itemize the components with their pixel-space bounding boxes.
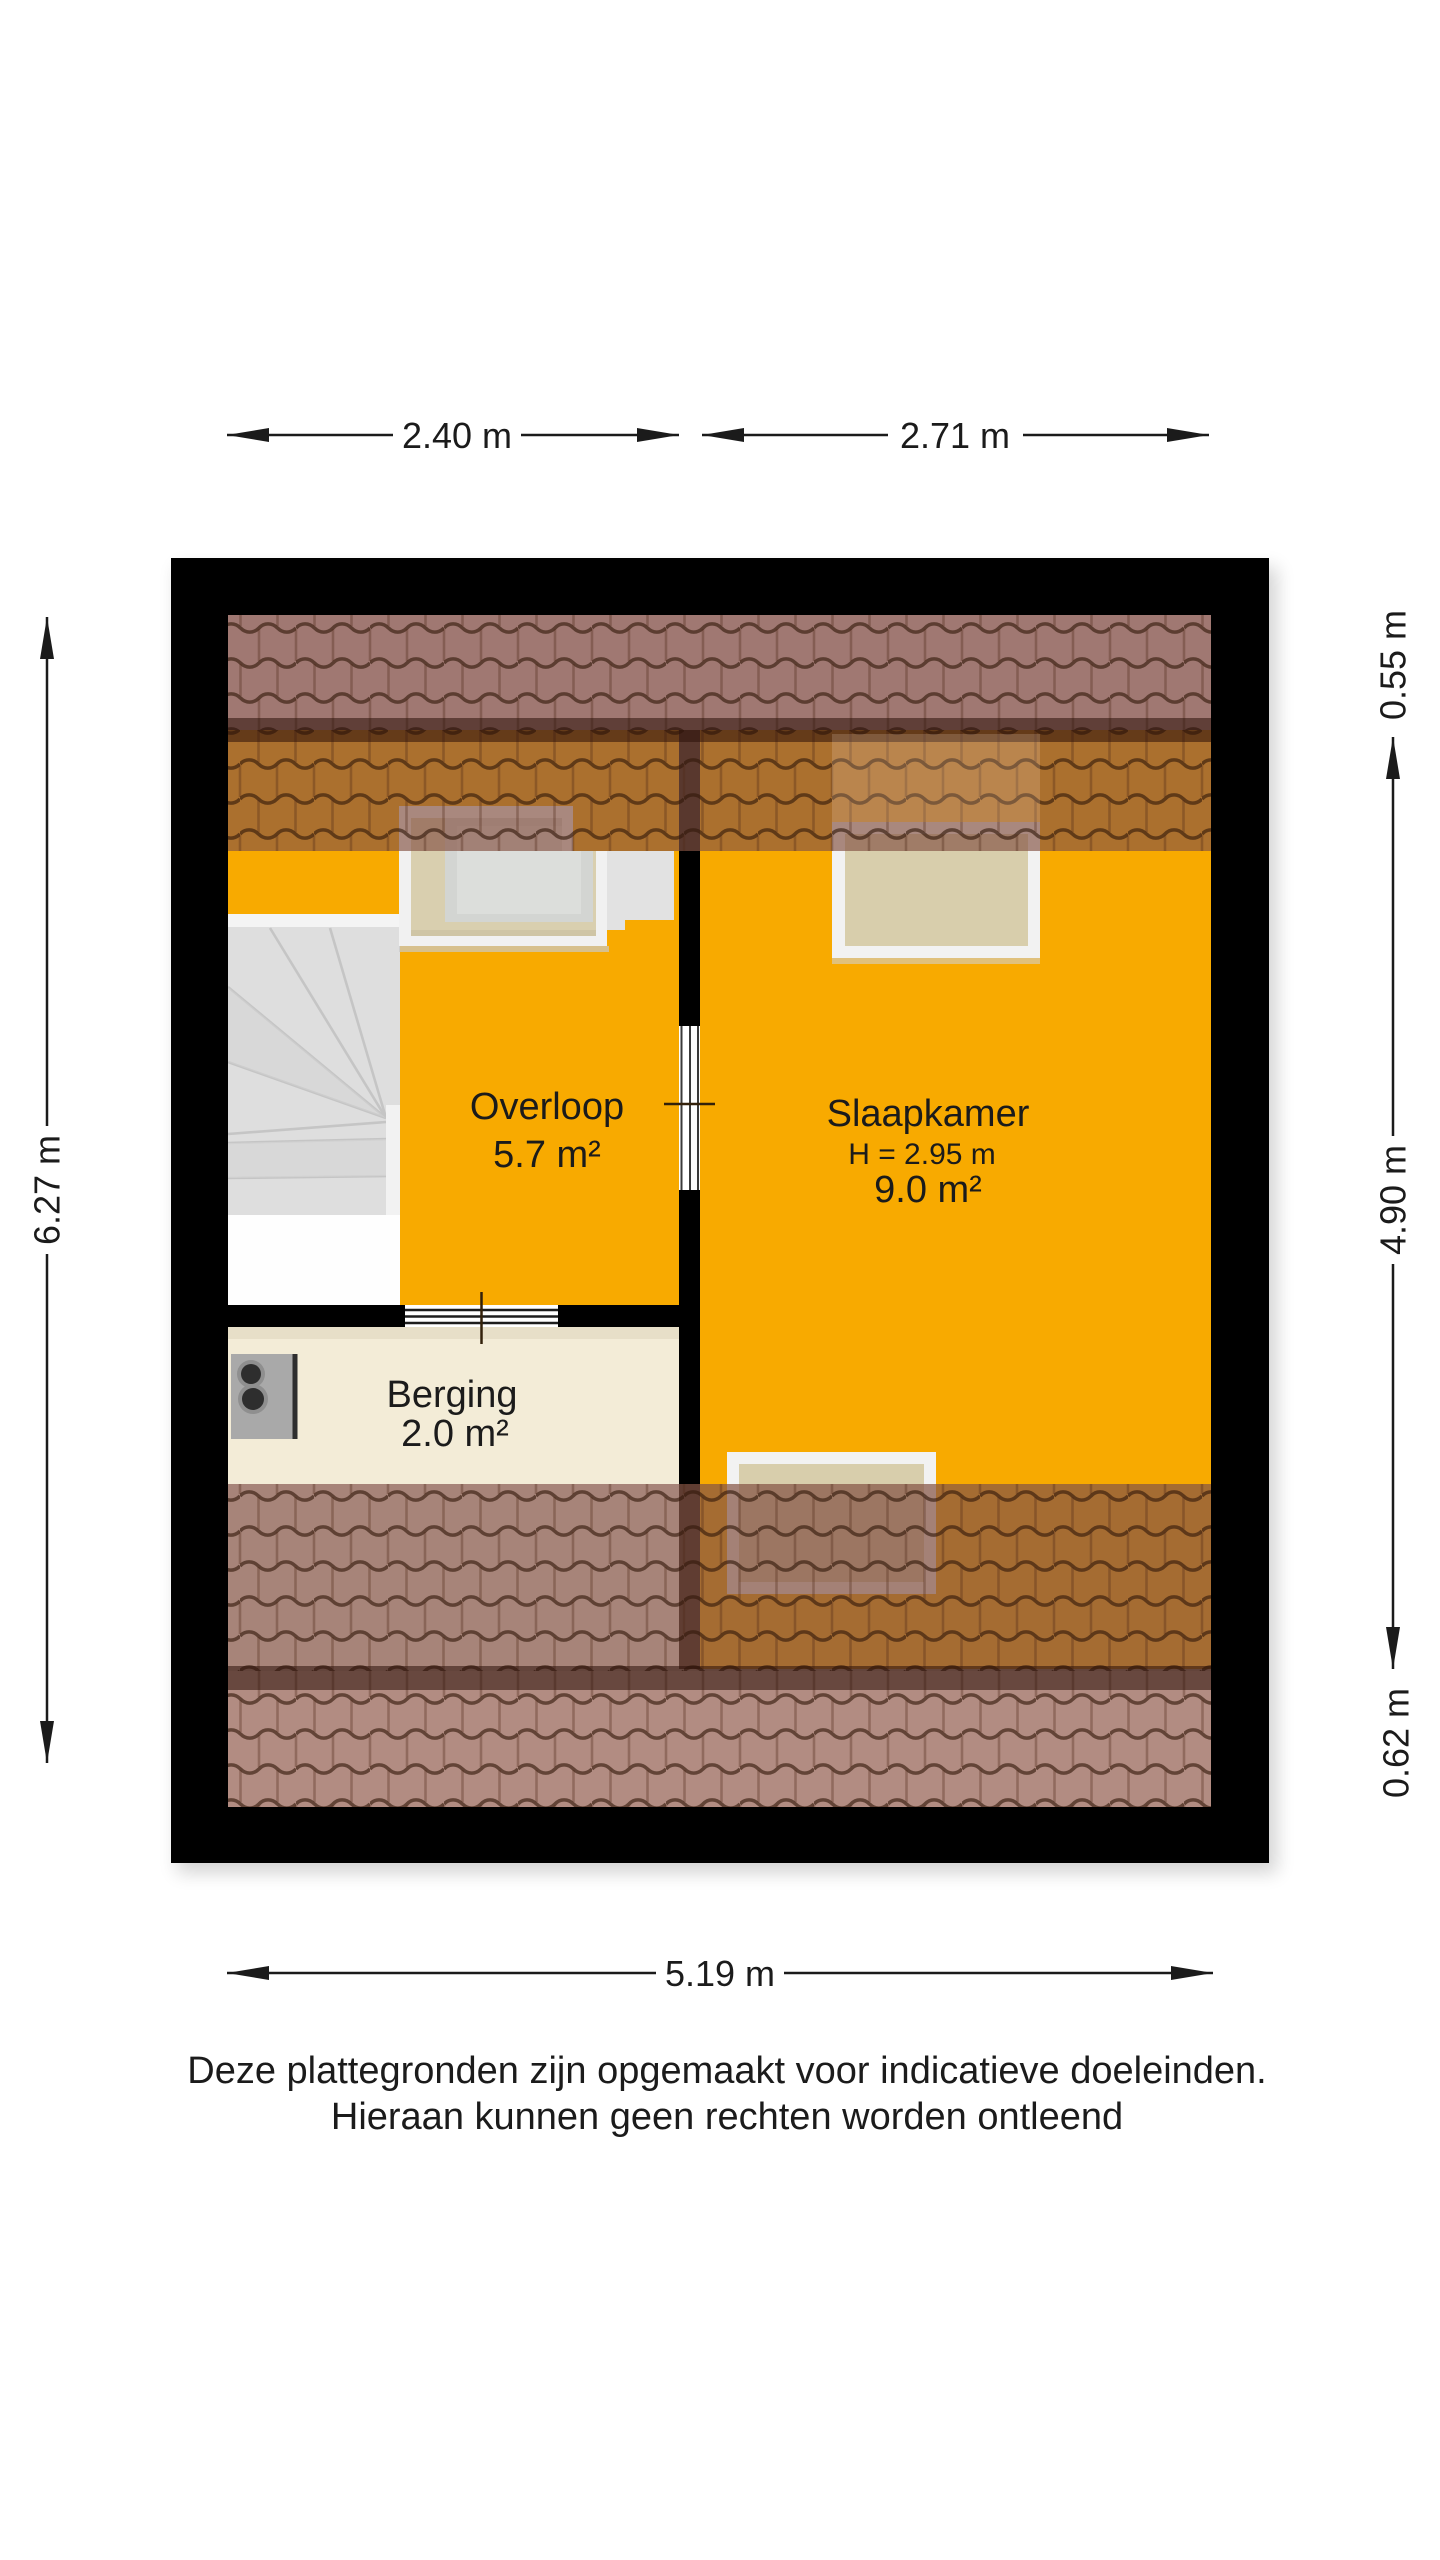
svg-text:2.40 m: 2.40 m xyxy=(402,415,512,456)
svg-text:5.7 m²: 5.7 m² xyxy=(493,1134,601,1176)
svg-text:H = 2.95 m: H = 2.95 m xyxy=(848,1138,996,1171)
svg-text:9.0 m²: 9.0 m² xyxy=(874,1169,982,1211)
svg-text:6.27 m: 6.27 m xyxy=(27,1135,68,1245)
svg-text:Hieraan kunnen geen rechten wo: Hieraan kunnen geen rechten worden ontle… xyxy=(331,2096,1123,2138)
svg-text:5.19 m: 5.19 m xyxy=(665,1953,775,1994)
svg-text:Overloop: Overloop xyxy=(470,1086,624,1128)
svg-text:0.55 m: 0.55 m xyxy=(1373,610,1414,720)
svg-text:Berging: Berging xyxy=(387,1374,518,1416)
svg-text:Slaapkamer: Slaapkamer xyxy=(827,1093,1030,1135)
svg-text:2.0 m²: 2.0 m² xyxy=(401,1413,509,1455)
svg-text:2.71 m: 2.71 m xyxy=(900,415,1010,456)
svg-text:0.62 m: 0.62 m xyxy=(1376,1688,1417,1798)
svg-text:Deze plattegronden zijn opgema: Deze plattegronden zijn opgemaakt voor i… xyxy=(187,2050,1267,2092)
svg-text:4.90 m: 4.90 m xyxy=(1373,1145,1414,1255)
